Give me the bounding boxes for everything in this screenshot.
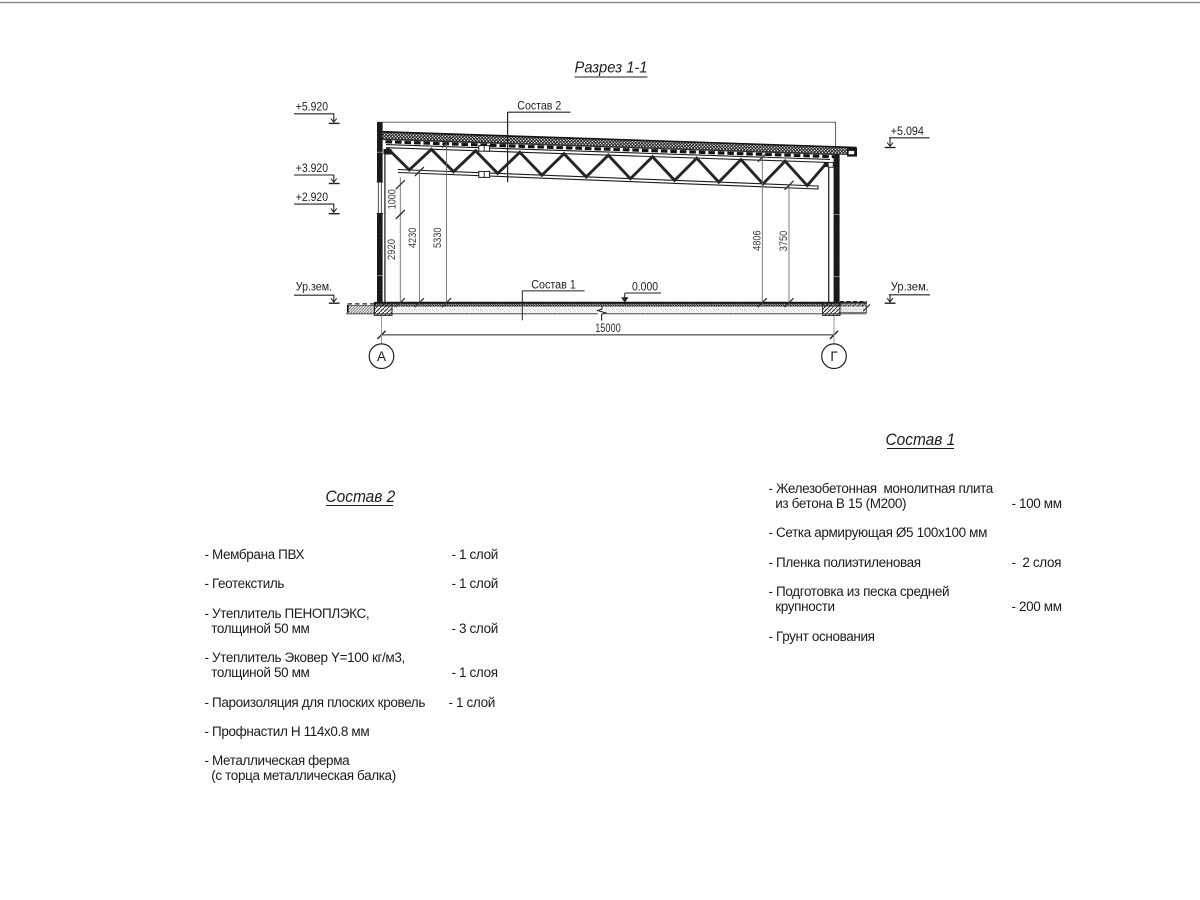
svg-text:Ур.зем.: Ур.зем. xyxy=(296,280,332,294)
svg-text:+2.920: +2.920 xyxy=(296,190,328,204)
svg-text:Г: Г xyxy=(830,349,838,364)
svg-text:3750: 3750 xyxy=(778,231,790,252)
svg-text:15000: 15000 xyxy=(595,321,621,335)
svg-text:+3.920: +3.920 xyxy=(296,161,328,175)
svg-text:1000: 1000 xyxy=(387,189,399,209)
svg-text:+5.920: +5.920 xyxy=(296,100,328,114)
svg-text:Состав 1: Состав 1 xyxy=(531,277,576,291)
svg-text:Ур.зем.: Ур.зем. xyxy=(891,279,929,293)
svg-text:4230: 4230 xyxy=(407,228,419,249)
svg-text:Состав 2: Состав 2 xyxy=(517,98,561,112)
svg-text:5330: 5330 xyxy=(432,228,444,249)
svg-text:+5.094: +5.094 xyxy=(891,124,924,138)
svg-text:А: А xyxy=(377,349,386,364)
svg-text:4806: 4806 xyxy=(751,230,763,251)
svg-text:2920: 2920 xyxy=(386,239,398,260)
svg-text:Разрез 1-1: Разрез 1-1 xyxy=(575,60,648,77)
svg-text:0.000: 0.000 xyxy=(632,280,658,294)
